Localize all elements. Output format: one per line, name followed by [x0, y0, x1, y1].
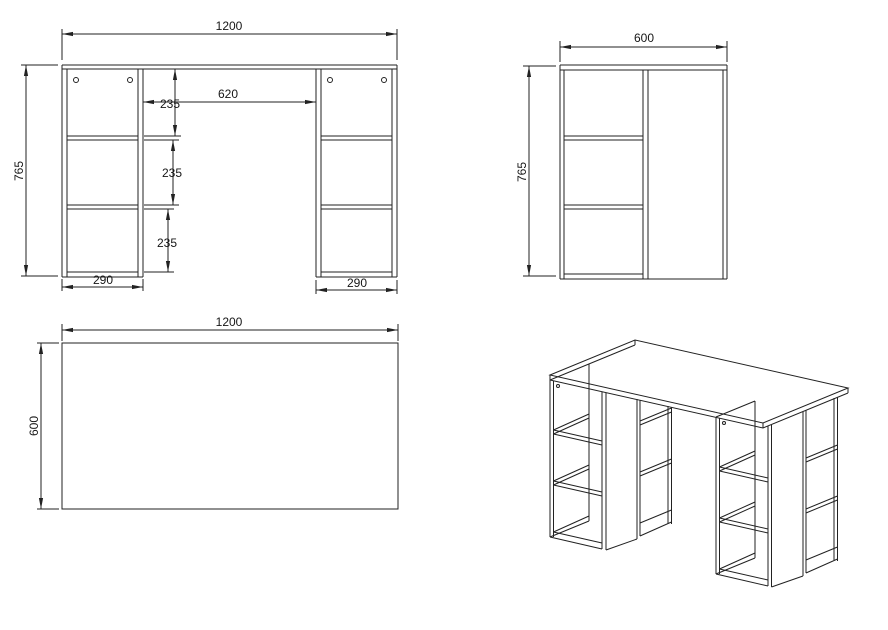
plan-view-outline [62, 343, 398, 509]
plan-width-label: 1200 [216, 315, 243, 329]
side-depth-label: 600 [634, 31, 654, 45]
side-view-dimensions: 600 765 [515, 31, 727, 276]
front-pedestal-left-label: 290 [93, 273, 113, 287]
desk-technical-drawing: 1200 765 620 235 235 235 290 290 [0, 0, 888, 630]
front-spacing-bottom-label: 235 [157, 236, 177, 250]
side-view-outline [560, 65, 727, 279]
screw-hole [74, 78, 79, 83]
screw-hole [382, 78, 387, 83]
front-view-dimensions: 1200 765 620 235 235 235 290 290 [12, 19, 397, 294]
front-pedestal-right-label: 290 [347, 276, 367, 290]
isometric-view [550, 340, 848, 587]
side-view: 600 765 [515, 31, 727, 279]
side-height-label: 765 [515, 162, 529, 182]
screw-hole [328, 78, 333, 83]
iso-left-pedestal [550, 364, 672, 550]
screw-hole [557, 385, 560, 388]
front-gap-label: 620 [218, 87, 238, 101]
screw-hole [723, 422, 726, 425]
plan-depth-label: 600 [27, 416, 41, 436]
front-width-label: 1200 [216, 19, 243, 33]
front-height-label: 765 [12, 161, 26, 181]
plan-view: 1200 600 [27, 315, 398, 509]
technical-drawing-page: 1200 765 620 235 235 235 290 290 [0, 0, 888, 630]
iso-right-pedestal [716, 397, 838, 587]
front-spacing-mid-label: 235 [162, 166, 182, 180]
front-spacing-top-label: 235 [160, 97, 180, 111]
plan-view-dimensions: 1200 600 [27, 315, 398, 509]
front-view: 1200 765 620 235 235 235 290 290 [12, 19, 397, 294]
screw-hole [128, 78, 133, 83]
